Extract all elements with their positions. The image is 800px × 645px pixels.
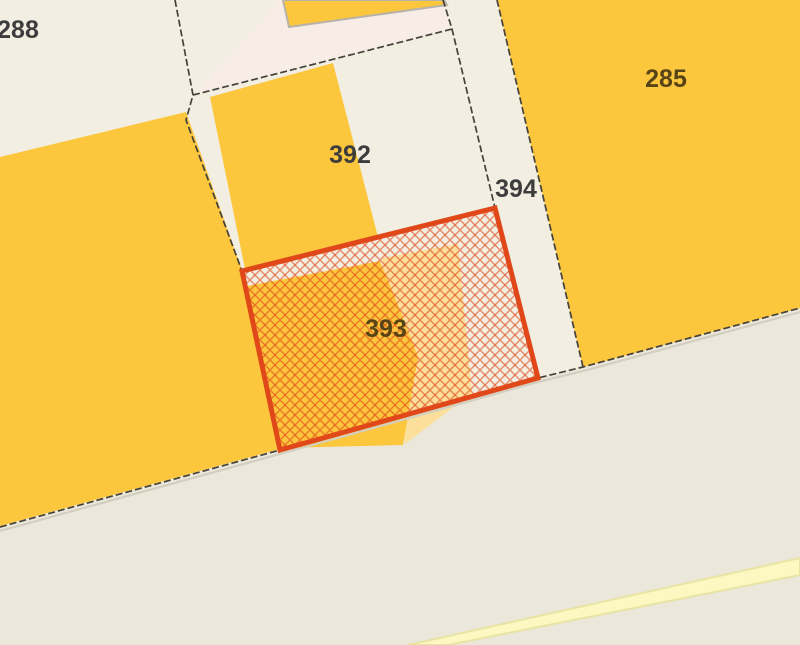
parcel-label-394: 394 (495, 175, 537, 203)
building-label-285: 285 (645, 65, 687, 93)
map-canvas[interactable]: 288 392 394 285 393 (0, 0, 800, 645)
building-label-393: 393 (365, 315, 407, 343)
map-viewport[interactable]: 288 392 394 285 393 (0, 0, 800, 645)
parcel-label-288: 288 (0, 16, 39, 44)
parcel-label-392: 392 (329, 141, 371, 169)
